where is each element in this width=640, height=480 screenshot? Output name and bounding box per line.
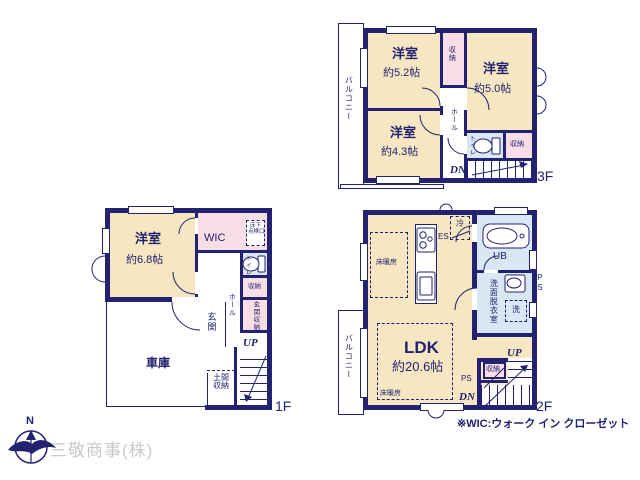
garage-label: 車庫 bbox=[146, 357, 170, 370]
floor-plan-page: バルコニー 洋室 約5.2帖 洋室 約5 bbox=[0, 0, 640, 480]
kitchen-sink-icon bbox=[417, 272, 435, 300]
door-arc bbox=[172, 302, 200, 330]
bathtub-icon bbox=[483, 224, 529, 248]
bay-window bbox=[537, 96, 546, 114]
wic-note: ※WIC:ウォーク イン クローゼット bbox=[457, 419, 629, 431]
es-leader-line bbox=[452, 231, 470, 238]
doma-label: 土間 収納 bbox=[208, 374, 234, 391]
up-2f-label: UP bbox=[507, 348, 522, 360]
floor3-label: 3F bbox=[537, 169, 553, 184]
doma-line2: 収納 bbox=[208, 382, 234, 390]
closet-3f-side-label: 収納 bbox=[510, 141, 524, 148]
balcony-2f-label: バルコニー bbox=[344, 334, 352, 379]
ps-right-label: PS bbox=[535, 273, 543, 293]
washroom-label: 洗面脱衣室 bbox=[489, 279, 497, 324]
vent-arc bbox=[440, 204, 452, 210]
room-5-0-size: 約5.0帖 bbox=[474, 84, 511, 96]
floor-heating-bottom-label: 床暖房 bbox=[380, 390, 401, 397]
door-arc bbox=[455, 288, 477, 310]
es-label: ES bbox=[438, 233, 449, 241]
room-6-8-size: 約6.8帖 bbox=[126, 255, 163, 267]
ps-left-label: PS bbox=[461, 375, 472, 383]
closet-2f-label: 収納 bbox=[486, 366, 500, 373]
closet-3f-top-label: 収納 bbox=[448, 46, 455, 62]
unit-bath-label: UB bbox=[493, 252, 507, 263]
dn-2f-label: DN bbox=[459, 392, 475, 404]
arrowhead bbox=[519, 161, 528, 168]
room-5-0-name: 洋室 bbox=[483, 62, 509, 76]
ldk-size: 約20.6帖 bbox=[392, 360, 443, 374]
room-5-2-size: 約5.2帖 bbox=[383, 68, 420, 80]
toilet-3f-label: トイレ bbox=[468, 135, 474, 156]
door-arc bbox=[173, 272, 195, 294]
bay-window bbox=[92, 256, 105, 282]
door-arc bbox=[422, 88, 440, 106]
stairs-arrow-line bbox=[484, 369, 524, 407]
floor1-label: 1F bbox=[275, 399, 291, 414]
closet-1f-label: 収納 bbox=[248, 284, 261, 291]
door-arc bbox=[448, 138, 464, 154]
ldk-name: LDK bbox=[404, 339, 439, 357]
door-arc bbox=[456, 226, 472, 242]
room-4-3-size: 約4.3帖 bbox=[381, 147, 418, 159]
hall-3f-label: ホール bbox=[450, 108, 457, 132]
dn-3f-label: DN bbox=[450, 165, 466, 177]
vent-arc bbox=[428, 410, 444, 418]
underfloor-hatch-label: 床下 点検口 bbox=[248, 224, 263, 236]
sink-icon bbox=[505, 275, 525, 292]
room-5-2-name: 洋室 bbox=[392, 47, 418, 61]
up-1f-label: UP bbox=[243, 338, 258, 350]
stove-icon bbox=[417, 228, 435, 252]
compass-north-label: N bbox=[26, 416, 34, 428]
balcony-3f-label: バルコニー bbox=[344, 76, 352, 121]
door-arc bbox=[420, 115, 440, 135]
hatch-line2: 点検口 bbox=[248, 230, 263, 236]
compass-icon bbox=[8, 430, 56, 463]
arrowhead bbox=[520, 365, 528, 372]
door-arc bbox=[179, 218, 195, 234]
stairs-arrow-line bbox=[248, 356, 266, 398]
arrowhead bbox=[244, 394, 252, 402]
wic-label: WIC bbox=[204, 233, 225, 245]
stairs-arrow-line bbox=[472, 165, 524, 175]
room-6-8-name: 洋室 bbox=[135, 232, 161, 246]
toilet-icon bbox=[474, 138, 500, 154]
entry-closet-label: 玄関収納 bbox=[251, 301, 258, 331]
toilet-1f-label: トイレ bbox=[244, 255, 250, 276]
room-4-3-name: 洋室 bbox=[390, 126, 416, 140]
fridge-label: 冷 bbox=[456, 220, 464, 228]
floor-heating-top-label: 床暖房 bbox=[376, 259, 397, 266]
company-name: 三敬商事(株) bbox=[50, 442, 153, 460]
floor2-label: 2F bbox=[536, 399, 552, 414]
washer-label: 洗 bbox=[512, 306, 520, 314]
entrance-label: 玄関 bbox=[206, 312, 215, 332]
bay-window bbox=[537, 68, 546, 86]
hall-1f-label: ホール bbox=[228, 293, 235, 317]
